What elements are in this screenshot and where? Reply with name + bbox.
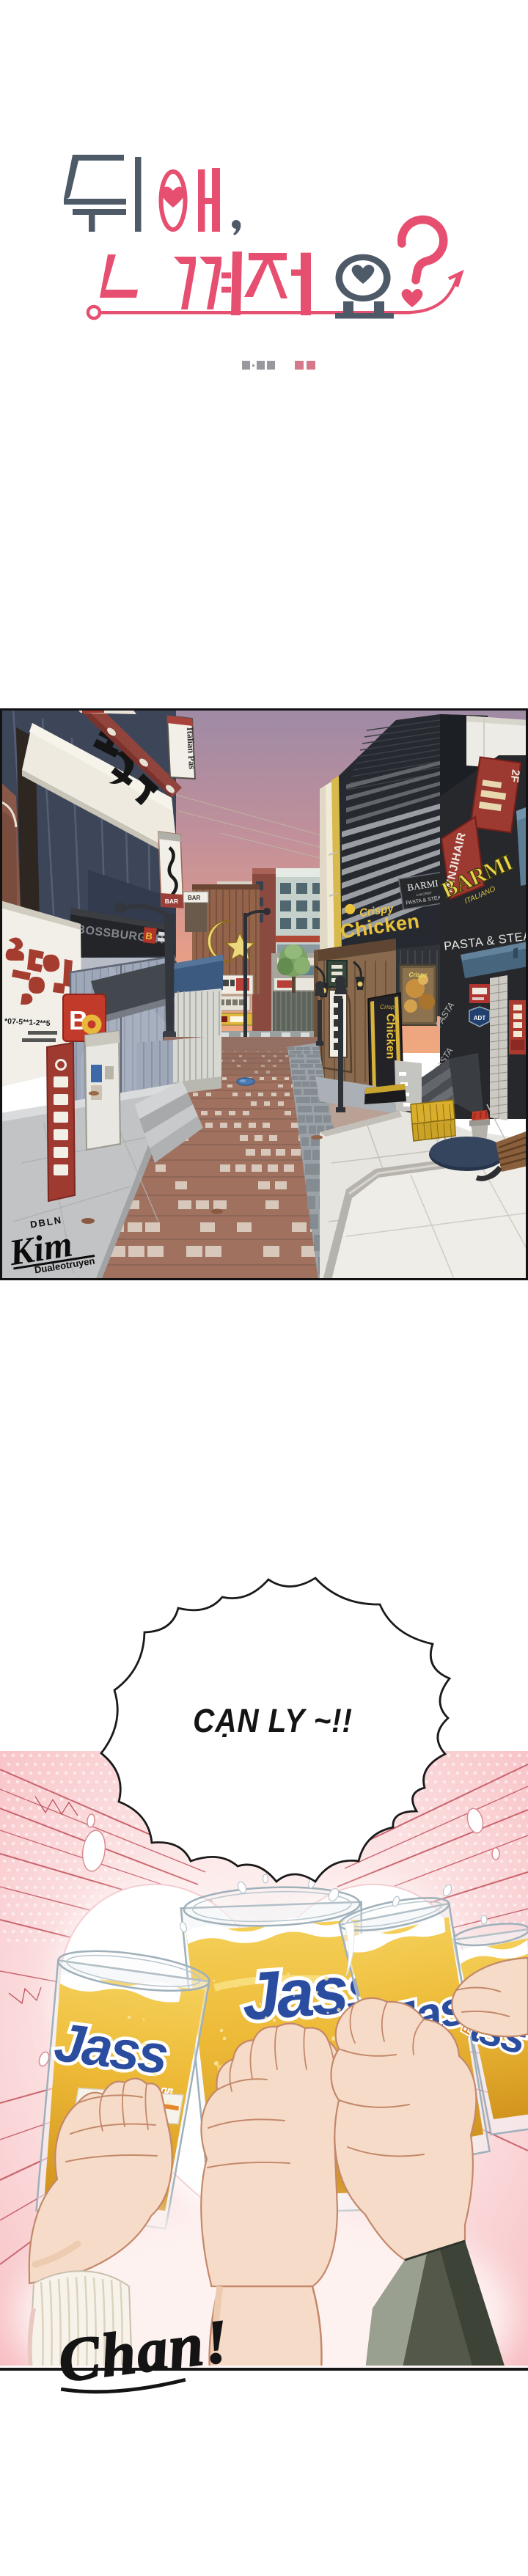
svg-text:Chicken: Chicken [384,1013,397,1059]
svg-text:BAR: BAR [188,895,201,901]
svg-text:CẠN LY ~!!: CẠN LY ~!! [193,1703,353,1739]
svg-text:Crispy: Crispy [409,972,428,978]
svg-text:ADT: ADT [474,1015,486,1021]
svg-text:2F: 2F [507,768,521,783]
svg-text:B: B [145,930,153,942]
svg-text:Crispy: Crispy [380,1003,398,1010]
svg-text:BAR: BAR [165,898,178,905]
svg-text:Chan!: Chan! [55,2307,234,2396]
